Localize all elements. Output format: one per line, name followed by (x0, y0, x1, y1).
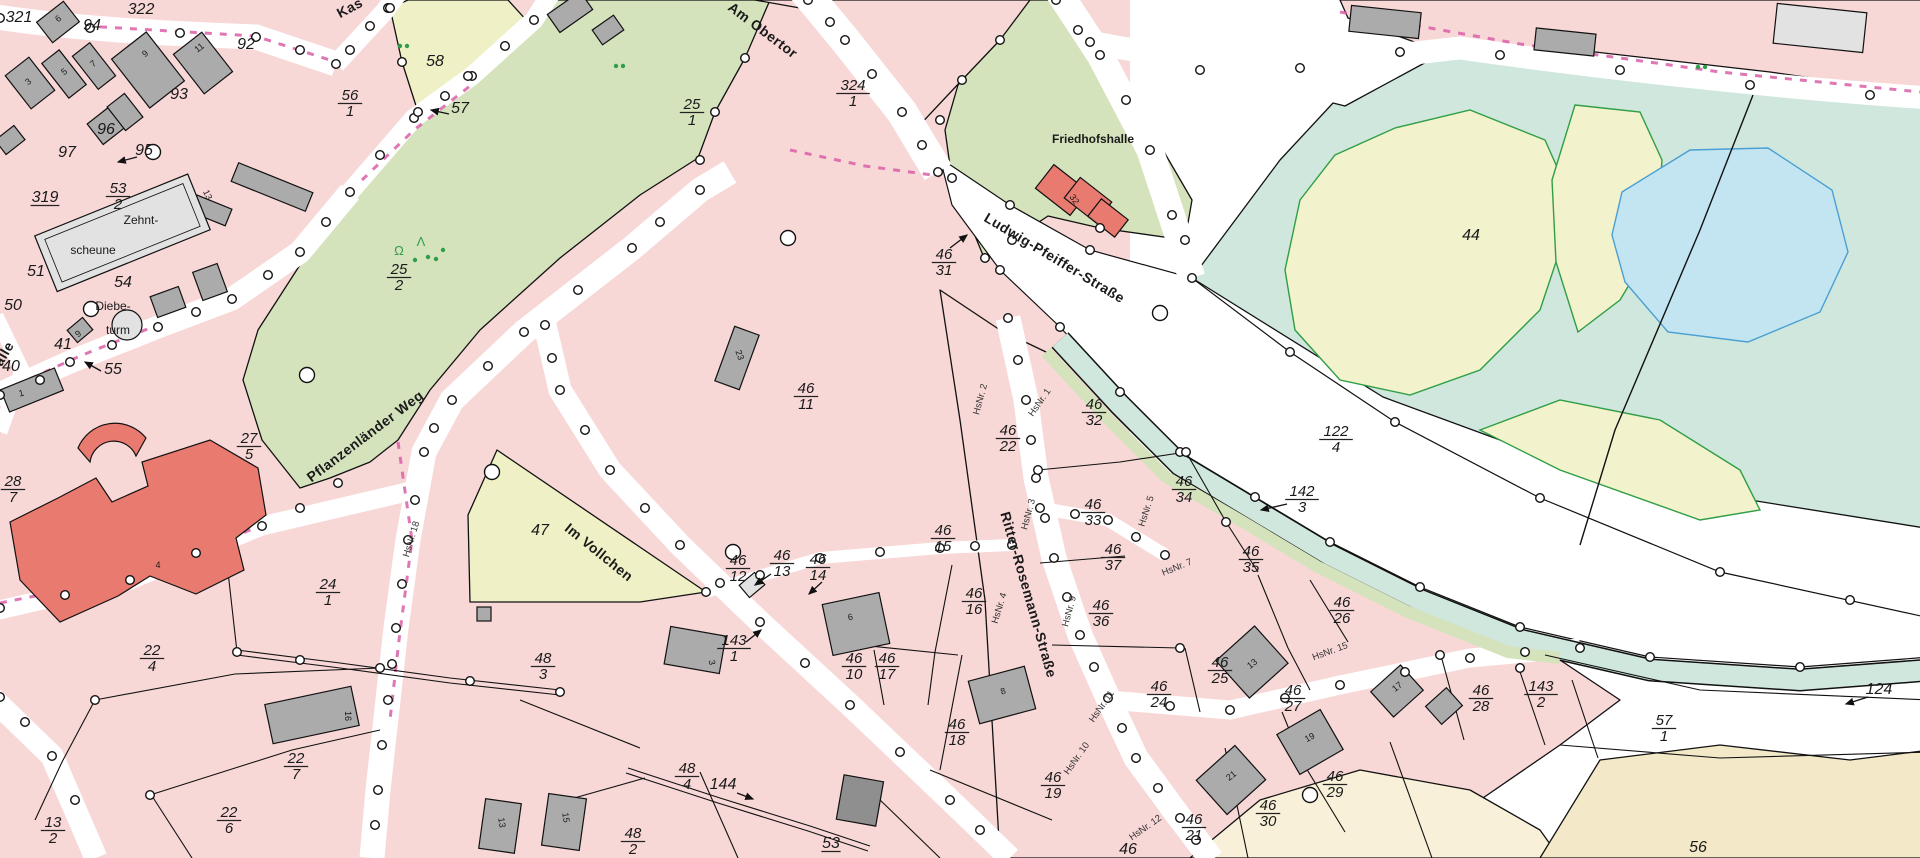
boundary-point (1071, 510, 1080, 519)
boundary-point (918, 141, 927, 150)
building-number-label: 16 (343, 711, 353, 721)
svg-text:46: 46 (1243, 543, 1260, 560)
boundary-point (606, 466, 615, 475)
boundary-point (0, 14, 4, 23)
svg-text:18: 18 (949, 732, 966, 749)
boundary-point (374, 786, 383, 795)
svg-text:16: 16 (966, 601, 983, 618)
building-number-label: 4 (155, 560, 160, 570)
parcel-number: 97 (58, 144, 77, 161)
boundary-point (641, 504, 650, 513)
svg-text:46: 46 (1085, 496, 1102, 513)
boundary-point (1132, 754, 1141, 763)
building-number-label: 15 (560, 812, 571, 823)
vegetation-dot-icon (441, 248, 445, 252)
boundary-point (581, 426, 590, 435)
place-label: turm (106, 323, 130, 337)
svg-text:46: 46 (966, 585, 983, 602)
boundary-point (656, 218, 665, 227)
boundary-point (484, 362, 493, 371)
svg-text:48: 48 (625, 825, 642, 842)
svg-text:15: 15 (935, 538, 952, 555)
parcel-number: 50 (4, 297, 22, 314)
boundary-point (233, 648, 242, 657)
svg-text:11: 11 (798, 396, 814, 413)
boundary-point (1188, 274, 1197, 283)
boundary-point (1466, 654, 1475, 663)
boundary-point (1168, 211, 1177, 220)
boundary-point (628, 244, 637, 253)
boundary-point (996, 36, 1005, 45)
boundary-point (296, 46, 305, 55)
parcel-number: 144 (710, 776, 737, 793)
boundary-point (1296, 64, 1305, 73)
boundary-point (556, 386, 565, 395)
boundary-point (192, 308, 201, 317)
boundary-point (1014, 356, 1023, 365)
svg-text:22: 22 (220, 804, 238, 821)
label-arrow (1846, 697, 1868, 704)
boundary-point (441, 92, 450, 101)
boundary-point (1161, 551, 1170, 560)
svg-text:46: 46 (1327, 768, 1344, 785)
svg-text:46: 46 (774, 547, 791, 564)
tree-symbol-icon: Ω (394, 243, 404, 258)
boundary-point (676, 541, 685, 550)
boundary-point (1646, 653, 1655, 662)
boundary-point (371, 821, 380, 830)
svg-text:57: 57 (1656, 712, 1673, 729)
parcel-number: 44 (1462, 227, 1480, 244)
svg-text:143: 143 (1528, 678, 1554, 695)
boundary-point (1286, 348, 1295, 357)
svg-text:29: 29 (1326, 784, 1344, 801)
boundary-point (1181, 236, 1190, 245)
boundary-point (334, 479, 343, 488)
svg-text:53: 53 (110, 180, 127, 197)
boundary-point (1090, 663, 1099, 672)
svg-text:46: 46 (1176, 473, 1193, 490)
boundary-point-major (781, 231, 796, 246)
svg-text:2: 2 (48, 830, 58, 847)
boundary-point (756, 571, 765, 580)
boundary-point-major (1153, 306, 1168, 321)
vegetation-dot-icon (621, 64, 625, 68)
boundary-point (21, 718, 30, 727)
boundary-point (541, 321, 550, 330)
svg-text:1: 1 (730, 648, 738, 665)
boundary-point (398, 58, 407, 67)
vegetation-dot-icon (614, 64, 618, 68)
svg-text:24: 24 (1150, 694, 1168, 711)
svg-text:3: 3 (1298, 499, 1307, 516)
boundary-point (448, 396, 457, 405)
boundary-point (1396, 48, 1405, 57)
svg-text:13: 13 (45, 814, 62, 831)
boundary-point (981, 254, 990, 263)
boundary-point (1122, 96, 1131, 105)
svg-text:46: 46 (1473, 682, 1490, 699)
svg-text:46: 46 (1186, 811, 1203, 828)
svg-text:48: 48 (535, 650, 552, 667)
svg-text:12: 12 (730, 568, 747, 585)
svg-text:22: 22 (999, 438, 1017, 455)
parcel-number: 58 (426, 53, 444, 70)
boundary-point (1196, 66, 1205, 75)
boundary-point (0, 391, 4, 400)
boundary-point (1041, 514, 1050, 523)
tree-symbol-icon: Λ (417, 234, 426, 249)
svg-text:25: 25 (1211, 670, 1229, 687)
parcel-number: 124 (1866, 681, 1893, 698)
boundary-point (48, 752, 57, 761)
svg-text:46: 46 (1105, 541, 1122, 558)
boundary-point (501, 42, 510, 51)
boundary-point (520, 328, 529, 337)
parcel-number: 55 (104, 361, 122, 378)
svg-text:22: 22 (143, 642, 161, 659)
boundary-point (1022, 396, 1031, 405)
boundary-point (0, 604, 4, 613)
vegetation-dot-icon (413, 258, 417, 262)
boundary-point (1176, 644, 1185, 653)
svg-text:34: 34 (1176, 489, 1193, 506)
boundary-point (696, 156, 705, 165)
boundary-point (530, 16, 539, 25)
svg-text:48: 48 (679, 760, 696, 777)
boundary-point (466, 677, 475, 686)
boundary-point (1496, 51, 1505, 60)
svg-text:46: 46 (810, 551, 827, 568)
svg-text:37: 37 (1105, 557, 1122, 574)
svg-text:2: 2 (394, 277, 404, 294)
boundary-point (1796, 663, 1805, 672)
svg-text:35: 35 (1243, 559, 1260, 576)
boundary-point (1050, 554, 1059, 563)
svg-text:21: 21 (1185, 827, 1203, 844)
boundary-point (71, 796, 80, 805)
boundary-point (1104, 516, 1113, 525)
boundary-point (1116, 388, 1125, 397)
svg-text:31: 31 (936, 262, 953, 279)
boundary-point (876, 548, 885, 557)
parcel-number: 92 (237, 36, 255, 53)
svg-text:27: 27 (240, 430, 258, 447)
boundary-point (826, 18, 835, 27)
svg-text:46: 46 (1285, 682, 1302, 699)
boundary-point (1336, 681, 1345, 690)
svg-text:6: 6 (225, 820, 234, 837)
boundary-point (126, 576, 135, 585)
boundary-point (154, 323, 163, 332)
boundary-point (548, 354, 557, 363)
boundary-point (1251, 493, 1260, 502)
boundary-point (1146, 146, 1155, 155)
boundary-point (258, 522, 267, 531)
place-label: Zehnt- (124, 213, 159, 227)
svg-text:25: 25 (390, 261, 408, 278)
boundary-point (934, 168, 943, 177)
svg-text:2: 2 (628, 841, 638, 858)
boundary-point (296, 504, 305, 513)
svg-text:1: 1 (688, 112, 696, 129)
parcel-number: 54 (114, 274, 132, 291)
boundary-point (332, 60, 341, 69)
boundary-point (414, 108, 423, 117)
boundary-point (948, 174, 957, 183)
svg-text:22: 22 (287, 750, 305, 767)
svg-text:30: 30 (1260, 813, 1277, 830)
boundary-point (936, 116, 945, 125)
boundary-point (1182, 448, 1191, 457)
boundary-point (296, 656, 305, 665)
boundary-point (1056, 323, 1065, 332)
boundary-point (411, 496, 420, 505)
boundary-point (1004, 314, 1013, 323)
boundary-point (36, 376, 45, 385)
boundary-point (846, 701, 855, 710)
boundary-point (756, 618, 765, 627)
boundary-point (1401, 668, 1410, 677)
place-label: Diebe- (95, 299, 130, 313)
boundary-point-major (485, 465, 500, 480)
svg-text:36: 36 (1093, 613, 1110, 630)
boundary-point (946, 796, 955, 805)
boundary-point (1132, 533, 1141, 542)
boundary-point (1176, 814, 1185, 823)
svg-text:33: 33 (1085, 512, 1102, 529)
boundary-point (376, 664, 385, 673)
parcel-number: 94 (83, 17, 101, 34)
svg-text:46: 46 (730, 552, 747, 569)
vegetation-dot-icon (398, 44, 402, 48)
boundary-point (386, 4, 395, 13)
svg-text:2: 2 (1536, 694, 1546, 711)
svg-text:1: 1 (324, 592, 332, 609)
svg-text:10: 10 (846, 666, 863, 683)
building-number-label: 13 (496, 817, 507, 828)
svg-text:1: 1 (849, 93, 857, 110)
parcel-number: 95 (135, 142, 153, 159)
parcel-number: 321 (6, 9, 33, 26)
svg-text:46: 46 (936, 246, 953, 263)
boundary-point (556, 688, 565, 697)
boundary-point (1154, 784, 1163, 793)
boundary-point (1076, 631, 1085, 640)
boundary-point (1052, 0, 1061, 4)
svg-text:17: 17 (879, 666, 896, 683)
map-canvas[interactable]: ΩΛ KasAm ObertorLudwig-Pfeiffer-StraßePf… (0, 0, 1920, 858)
boundary-point (1746, 81, 1755, 90)
boundary-point (296, 248, 305, 257)
svg-text:25: 25 (683, 96, 701, 113)
svg-text:46: 46 (1212, 654, 1229, 671)
boundary-point (1032, 474, 1041, 483)
boundary-point (1616, 66, 1625, 75)
boundary-point (346, 46, 355, 55)
boundary-point (430, 424, 439, 433)
parcel-number: 47 (531, 522, 550, 539)
svg-text:324: 324 (840, 77, 865, 94)
svg-text:2: 2 (113, 196, 123, 213)
svg-text:24: 24 (319, 576, 337, 593)
boundary-point (1326, 538, 1335, 547)
parcel-number: 319 (32, 189, 59, 206)
boundary-point (91, 696, 100, 705)
boundary-point (228, 295, 237, 304)
boundary-point (108, 341, 117, 350)
boundary-point (1027, 436, 1036, 445)
boundary-point (1436, 651, 1445, 660)
boundary-point (388, 660, 397, 669)
parcel-number: 40 (2, 358, 20, 375)
place-label: Friedhofshalle (1052, 132, 1134, 146)
boundary-point (716, 579, 725, 588)
boundary-point (1576, 644, 1585, 653)
vegetation-dot-icon (1703, 65, 1707, 69)
parcel-number: 41 (54, 336, 72, 353)
svg-text:56: 56 (342, 87, 359, 104)
boundary-point (376, 151, 385, 160)
svg-text:46: 46 (949, 716, 966, 733)
boundary-point (1096, 224, 1105, 233)
boundary-point (702, 588, 711, 597)
boundary-point (384, 696, 393, 705)
boundary-point (711, 108, 720, 117)
vegetation-dot-icon (405, 44, 409, 48)
svg-text:143: 143 (721, 632, 747, 649)
boundary-point (1074, 26, 1083, 35)
parcel-number: 46 (1119, 841, 1137, 858)
boundary-point (1006, 201, 1015, 210)
boundary-point (66, 358, 75, 367)
svg-text:28: 28 (4, 473, 22, 490)
parcel-number: 51 (27, 263, 45, 280)
svg-text:46: 46 (1045, 769, 1062, 786)
svg-text:13: 13 (774, 563, 791, 580)
svg-text:32: 32 (1086, 412, 1103, 429)
boundary-point (898, 108, 907, 117)
svg-text:27: 27 (1284, 698, 1302, 715)
boundary-point (398, 580, 407, 589)
boundary-point (1866, 91, 1875, 100)
svg-text:46: 46 (1000, 422, 1017, 439)
parcel-number: 57 (451, 100, 470, 117)
svg-text:7: 7 (292, 766, 301, 783)
boundary-point (0, 693, 4, 702)
svg-text:46: 46 (879, 650, 896, 667)
svg-text:46: 46 (1260, 797, 1277, 814)
svg-text:5: 5 (245, 446, 254, 463)
svg-text:4: 4 (683, 776, 691, 793)
svg-text:46: 46 (1093, 597, 1110, 614)
parcel-number: 53 (822, 835, 840, 852)
boundary-point (1716, 568, 1725, 577)
boundary-point (801, 659, 810, 668)
boundary-point (420, 448, 429, 457)
vegetation-dot-icon (434, 257, 438, 261)
boundary-point (1096, 51, 1105, 60)
boundary-point (741, 54, 750, 63)
boundary-point (1222, 518, 1231, 527)
boundary-point (1846, 596, 1855, 605)
vegetation-dot-icon (1696, 65, 1700, 69)
svg-text:1: 1 (346, 103, 354, 120)
boundary-point (1516, 664, 1525, 673)
boundary-point (464, 72, 473, 81)
boundary-point (1034, 466, 1043, 475)
svg-text:142: 142 (1289, 483, 1315, 500)
boundary-point (176, 29, 185, 38)
boundary-point (1118, 724, 1127, 733)
svg-text:19: 19 (1045, 785, 1062, 802)
boundary-point (958, 76, 967, 85)
place-label: scheune (70, 243, 116, 257)
boundary-point (1226, 706, 1235, 715)
boundary-point (696, 186, 705, 195)
boundary-point (574, 286, 583, 295)
boundary-point (392, 624, 401, 633)
svg-text:1: 1 (1660, 728, 1668, 745)
svg-text:4: 4 (148, 658, 156, 675)
boundary-point-major (1303, 788, 1318, 803)
boundary-point (192, 549, 201, 558)
boundary-point (1536, 494, 1545, 503)
boundary-point (322, 218, 331, 227)
svg-text:46: 46 (798, 380, 815, 397)
boundary-point (378, 741, 387, 750)
boundary-point (264, 271, 273, 280)
parcel-number-fraction: 571 (1652, 712, 1676, 745)
svg-text:46: 46 (1151, 678, 1168, 695)
svg-text:46: 46 (846, 650, 863, 667)
svg-text:46: 46 (1334, 594, 1351, 611)
boundary-point (1036, 504, 1045, 513)
svg-text:46: 46 (935, 522, 952, 539)
boundary-point (1521, 648, 1530, 657)
boundary-point (1516, 623, 1525, 632)
boundary-point (146, 791, 155, 800)
boundary-point (976, 826, 985, 835)
parcel-number: 322 (128, 1, 155, 18)
svg-text:46: 46 (1086, 396, 1103, 413)
boundary-point (1391, 418, 1400, 427)
boundary-point (971, 542, 980, 551)
boundary-point (1086, 38, 1095, 47)
boundary-point (1416, 583, 1425, 592)
boundary-point (896, 748, 905, 757)
svg-text:122: 122 (1323, 423, 1349, 440)
boundary-point-major (300, 368, 315, 383)
boundary-point (1086, 246, 1095, 255)
boundary-point (366, 22, 375, 31)
svg-text:28: 28 (1472, 698, 1490, 715)
boundary-point (804, 0, 813, 4)
parcel-number: 96 (97, 121, 115, 138)
svg-text:3: 3 (539, 666, 548, 683)
boundary-point (346, 188, 355, 197)
boundary-point (868, 70, 877, 79)
svg-text:4: 4 (1332, 439, 1340, 456)
svg-text:26: 26 (1333, 610, 1351, 627)
vegetation-dot-icon (426, 255, 430, 259)
parcel-number: 93 (170, 86, 188, 103)
boundary-point (61, 591, 70, 600)
cadastral-map-viewport[interactable]: ΩΛ KasAm ObertorLudwig-Pfeiffer-StraßePf… (0, 0, 1920, 858)
boundary-point (996, 266, 1005, 275)
svg-text:7: 7 (9, 489, 18, 506)
parcel-number: 56 (1689, 839, 1707, 856)
